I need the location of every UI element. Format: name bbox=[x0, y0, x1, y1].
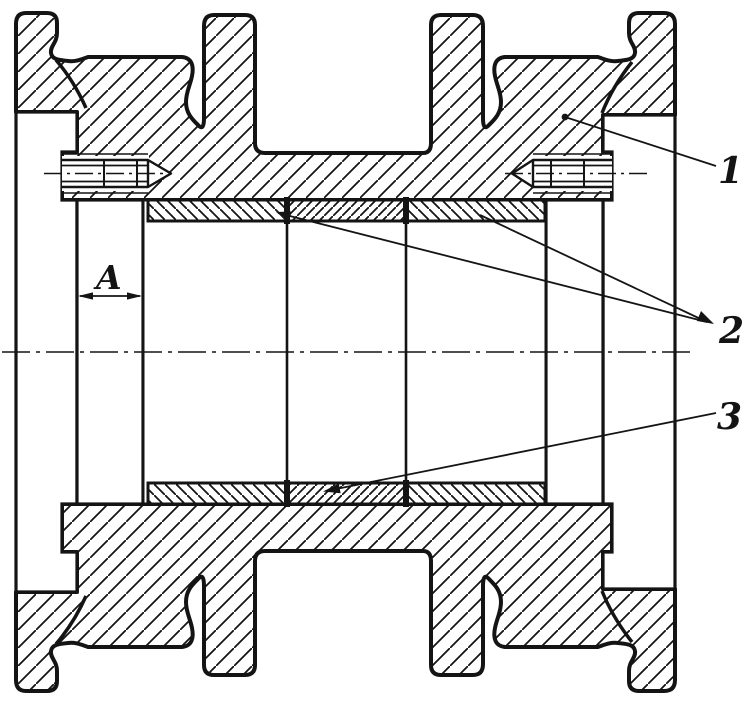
bushing-left-upper bbox=[148, 200, 284, 221]
bushing-right-lower bbox=[406, 483, 545, 504]
dimension-A-label: A bbox=[93, 258, 122, 297]
leader-dot bbox=[562, 114, 569, 121]
callout-2-label: 2 bbox=[718, 310, 744, 352]
callout-1-label: 1 bbox=[718, 150, 743, 192]
callout-3-label: 3 bbox=[717, 396, 742, 438]
technical-drawing-page: A 1 2 3 bbox=[0, 0, 752, 702]
leader-arrow bbox=[697, 311, 714, 324]
spacer-upper bbox=[284, 200, 406, 221]
upper-bushings bbox=[148, 197, 545, 224]
roller-cross-section-drawing: A 1 2 3 bbox=[0, 0, 752, 702]
bushing-right-upper bbox=[406, 200, 545, 221]
spacer-lower bbox=[284, 483, 406, 504]
lower-bushings bbox=[148, 480, 545, 507]
bushing-left-lower bbox=[148, 483, 284, 504]
